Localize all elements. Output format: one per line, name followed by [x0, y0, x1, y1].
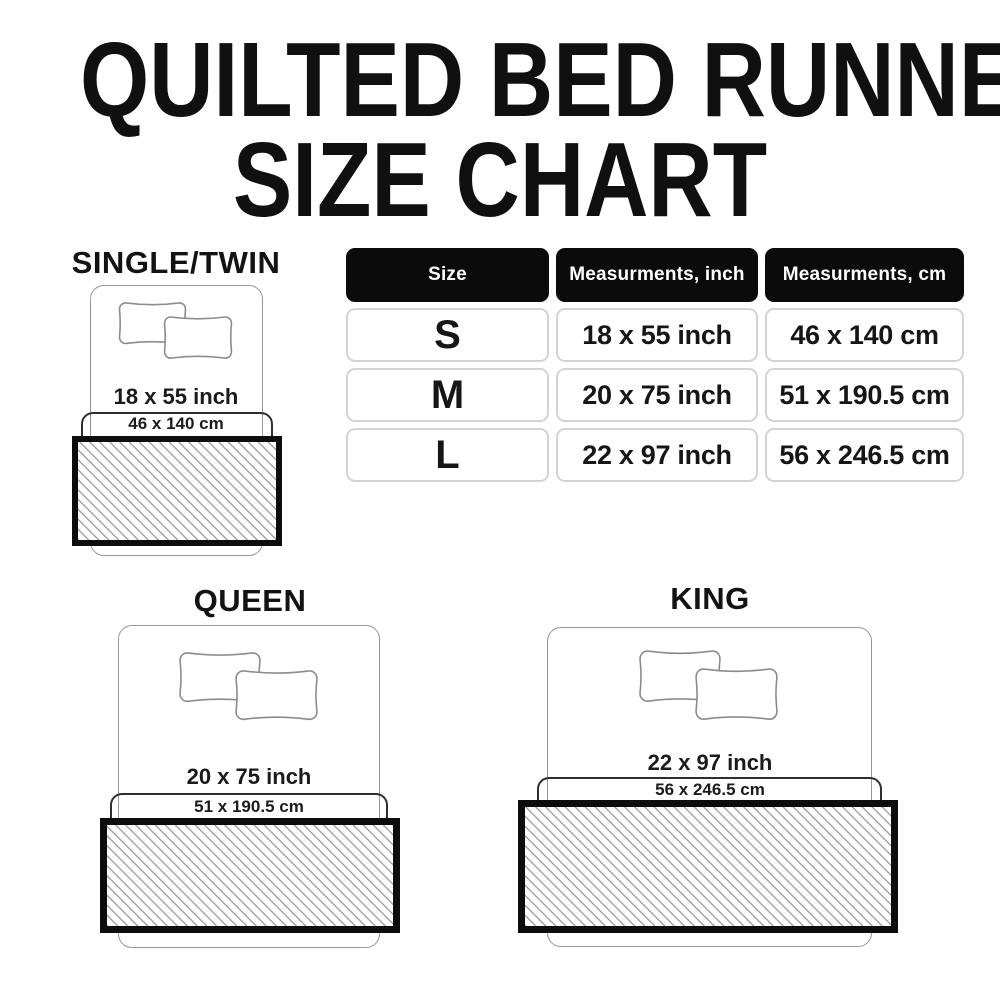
section-label-single-twin: SINGLE/TWIN — [26, 246, 326, 280]
dimension-inch-king: 22 x 97 inch — [560, 750, 860, 776]
table-cell-inch-s: 18 x 55 inch — [556, 308, 758, 362]
table-cell-size-s: S — [346, 308, 549, 362]
pillow-front-icon — [236, 671, 317, 719]
dimension-cm-single: 46 x 140 cm — [26, 414, 326, 434]
table-cell-cm-m: 51 x 190.5 cm — [765, 368, 964, 422]
table-cell-cm-s: 46 x 140 cm — [765, 308, 964, 362]
section-label-king: KING — [560, 582, 860, 616]
table-cell-size-m: M — [346, 368, 549, 422]
dimension-inch-queen: 20 x 75 inch — [99, 764, 399, 790]
table-header-size: Size — [346, 248, 549, 302]
size-chart-infographic: QUILTED BED RUNNER SIZE CHART SINGLE/TWI… — [0, 0, 1000, 1000]
bed-runner-swatch-queen — [100, 818, 400, 933]
table-cell-cm-l: 56 x 246.5 cm — [765, 428, 964, 482]
table-cell-inch-l: 22 x 97 inch — [556, 428, 758, 482]
pillows-queen — [175, 645, 323, 727]
section-label-queen: QUEEN — [100, 584, 400, 618]
pillow-front-icon — [696, 669, 777, 719]
bed-runner-swatch-king — [518, 800, 898, 933]
pillows-single — [115, 296, 237, 366]
page-title: QUILTED BED RUNNER SIZE CHART — [0, 30, 1000, 230]
table-cell-inch-m: 20 x 75 inch — [556, 368, 758, 422]
dimension-cm-queen: 51 x 190.5 cm — [99, 797, 399, 817]
page-title-line-2: SIZE CHART — [80, 130, 920, 230]
table-cell-size-l: L — [346, 428, 549, 482]
page-title-line-1: QUILTED BED RUNNER — [80, 30, 920, 130]
dimension-inch-single: 18 x 55 inch — [26, 384, 326, 410]
table-header-cm: Measurments, cm — [765, 248, 964, 302]
bed-runner-swatch-single — [72, 436, 282, 546]
dimension-cm-king: 56 x 246.5 cm — [560, 780, 860, 800]
pillows-king — [635, 641, 783, 727]
table-header-inch: Measurments, inch — [556, 248, 758, 302]
pillow-front-icon — [165, 317, 232, 358]
size-table: Size Measurments, inch Measurments, cm S… — [346, 248, 964, 482]
